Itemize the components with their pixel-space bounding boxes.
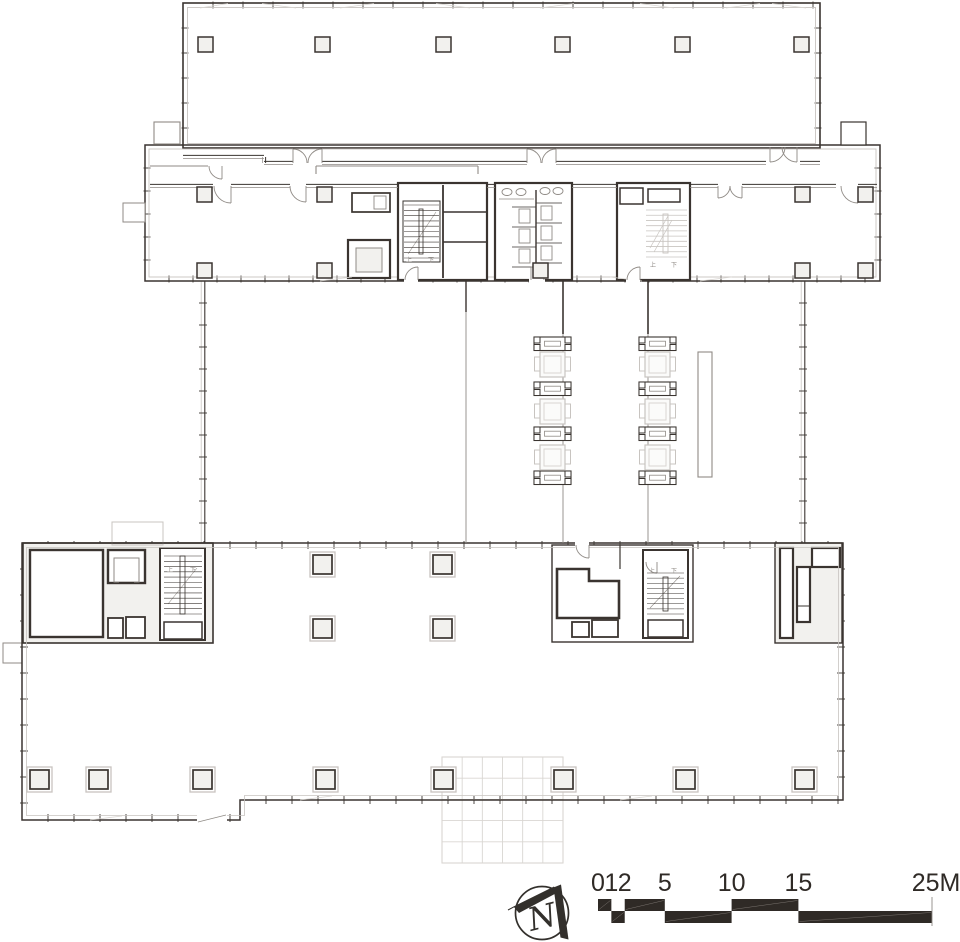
bench-seat (639, 479, 645, 485)
door-opening (575, 542, 589, 549)
column (436, 37, 451, 52)
column (433, 555, 452, 574)
wall-rect (780, 548, 793, 638)
bench-seat (670, 435, 676, 441)
columns (27, 37, 873, 792)
bench-seat (670, 345, 676, 351)
wall-rect (592, 620, 618, 637)
door-swing-arc (293, 149, 307, 163)
door-swing-arc (841, 186, 858, 203)
door-opening (404, 277, 418, 284)
column (197, 263, 212, 278)
column (197, 187, 212, 202)
bench-seat (565, 435, 571, 441)
floor-plan-drawing: 上下上下上下上下0125101525MN (0, 0, 960, 942)
bench-seat (670, 427, 676, 433)
column (315, 37, 330, 52)
scale-label: 5 (658, 869, 672, 897)
bench-seat (639, 427, 645, 433)
north-letter: N (523, 895, 561, 939)
wall-rect (3, 643, 22, 663)
column (313, 555, 332, 574)
wall-rect (123, 203, 145, 222)
wall-rect (572, 622, 589, 637)
bench-seat (639, 345, 645, 351)
door-swing-arc (214, 186, 231, 203)
column (794, 37, 809, 52)
bench-seat (534, 479, 540, 485)
wall-rect (648, 189, 680, 202)
bench-seat (670, 382, 676, 388)
column (434, 770, 453, 789)
bench-seat (639, 382, 645, 388)
bench-seat (565, 390, 571, 396)
stair-direction-label: 上 (649, 567, 655, 575)
wall-rect (841, 122, 866, 145)
wall-rect (183, 3, 820, 148)
stair-direction-label: 上 (650, 261, 656, 269)
column (795, 770, 814, 789)
floor-plan-sheet: 上下上下上下上下0125101525MN (0, 0, 960, 942)
column (858, 187, 873, 202)
bench-seat (670, 337, 676, 343)
bench-seat (534, 390, 540, 396)
scale-label: 0 (591, 869, 605, 897)
column (198, 37, 213, 52)
column (316, 770, 335, 789)
stair-labels: 上下上下上下上下 (167, 256, 677, 575)
stair-direction-label: 下 (190, 567, 196, 574)
scale-label: 1 (604, 869, 618, 897)
bench-seat (565, 382, 571, 388)
wall-rect (112, 522, 163, 545)
column (533, 263, 548, 278)
bench-seat (534, 427, 540, 433)
wall-rect (30, 550, 103, 637)
bench-seat (534, 471, 540, 477)
wall-rect (188, 8, 816, 144)
door-swing-arc (730, 186, 742, 198)
scale-label: 2 (618, 869, 632, 897)
column (313, 619, 332, 638)
column (795, 187, 810, 202)
wall-rect (812, 548, 840, 567)
wall-rect (797, 567, 810, 622)
wall-rect (126, 617, 145, 638)
column (858, 263, 873, 278)
bench-seat (670, 479, 676, 485)
wall-rect (108, 618, 123, 638)
stair-direction-label: 下 (671, 568, 677, 575)
door-opening (626, 277, 640, 284)
door-swing-arc (542, 149, 556, 163)
column (676, 770, 695, 789)
partition-lines (90, 4, 810, 821)
scale-label: 15 (784, 869, 812, 897)
stair-direction-label: 下 (671, 262, 677, 269)
stair-direction-label: 上 (406, 256, 412, 264)
scale-label: 10 (718, 869, 746, 897)
wall-rect (698, 352, 712, 477)
column (317, 187, 332, 202)
bench-seat (565, 345, 571, 351)
curtain-walls (20, 2, 882, 823)
wall-rect (180, 556, 185, 614)
column (554, 770, 573, 789)
column (317, 263, 332, 278)
bench-seat (639, 337, 645, 343)
column (795, 263, 810, 278)
entrance-canopy-grid (442, 757, 563, 863)
wall-rect (620, 188, 643, 204)
bench-seat (534, 337, 540, 343)
column (433, 619, 452, 638)
bench-seat (670, 471, 676, 477)
stair-direction-label: 上 (167, 566, 173, 574)
bench-seat (639, 390, 645, 396)
door-swing-arc (308, 149, 322, 163)
bench-seat (565, 471, 571, 477)
bench-seat (534, 345, 540, 351)
column (555, 37, 570, 52)
bench-seat (565, 479, 571, 485)
wall-rect (356, 248, 382, 272)
column (30, 770, 49, 789)
door-swing-arc (209, 166, 222, 179)
column (193, 770, 212, 789)
column (675, 37, 690, 52)
scale-bar: 0125101525M (591, 869, 960, 926)
bench-seat (534, 382, 540, 388)
stair-direction-label: 下 (428, 257, 434, 264)
door-swing-arc (290, 186, 306, 202)
north-chevron-tail (508, 907, 514, 910)
column (89, 770, 108, 789)
bench-seat (565, 427, 571, 433)
scale-label: 25M (912, 869, 960, 897)
bench-seat (670, 390, 676, 396)
door-swing-arc (527, 149, 541, 163)
wall-rect (154, 122, 180, 144)
bench-seat (639, 435, 645, 441)
bench-seat (639, 471, 645, 477)
bench-seat (534, 435, 540, 441)
wall-rect (663, 577, 668, 611)
door-swing-arc (718, 186, 730, 198)
lobby-furniture (534, 337, 676, 485)
bench-seat (565, 337, 571, 343)
north-arrow: N (508, 885, 569, 940)
